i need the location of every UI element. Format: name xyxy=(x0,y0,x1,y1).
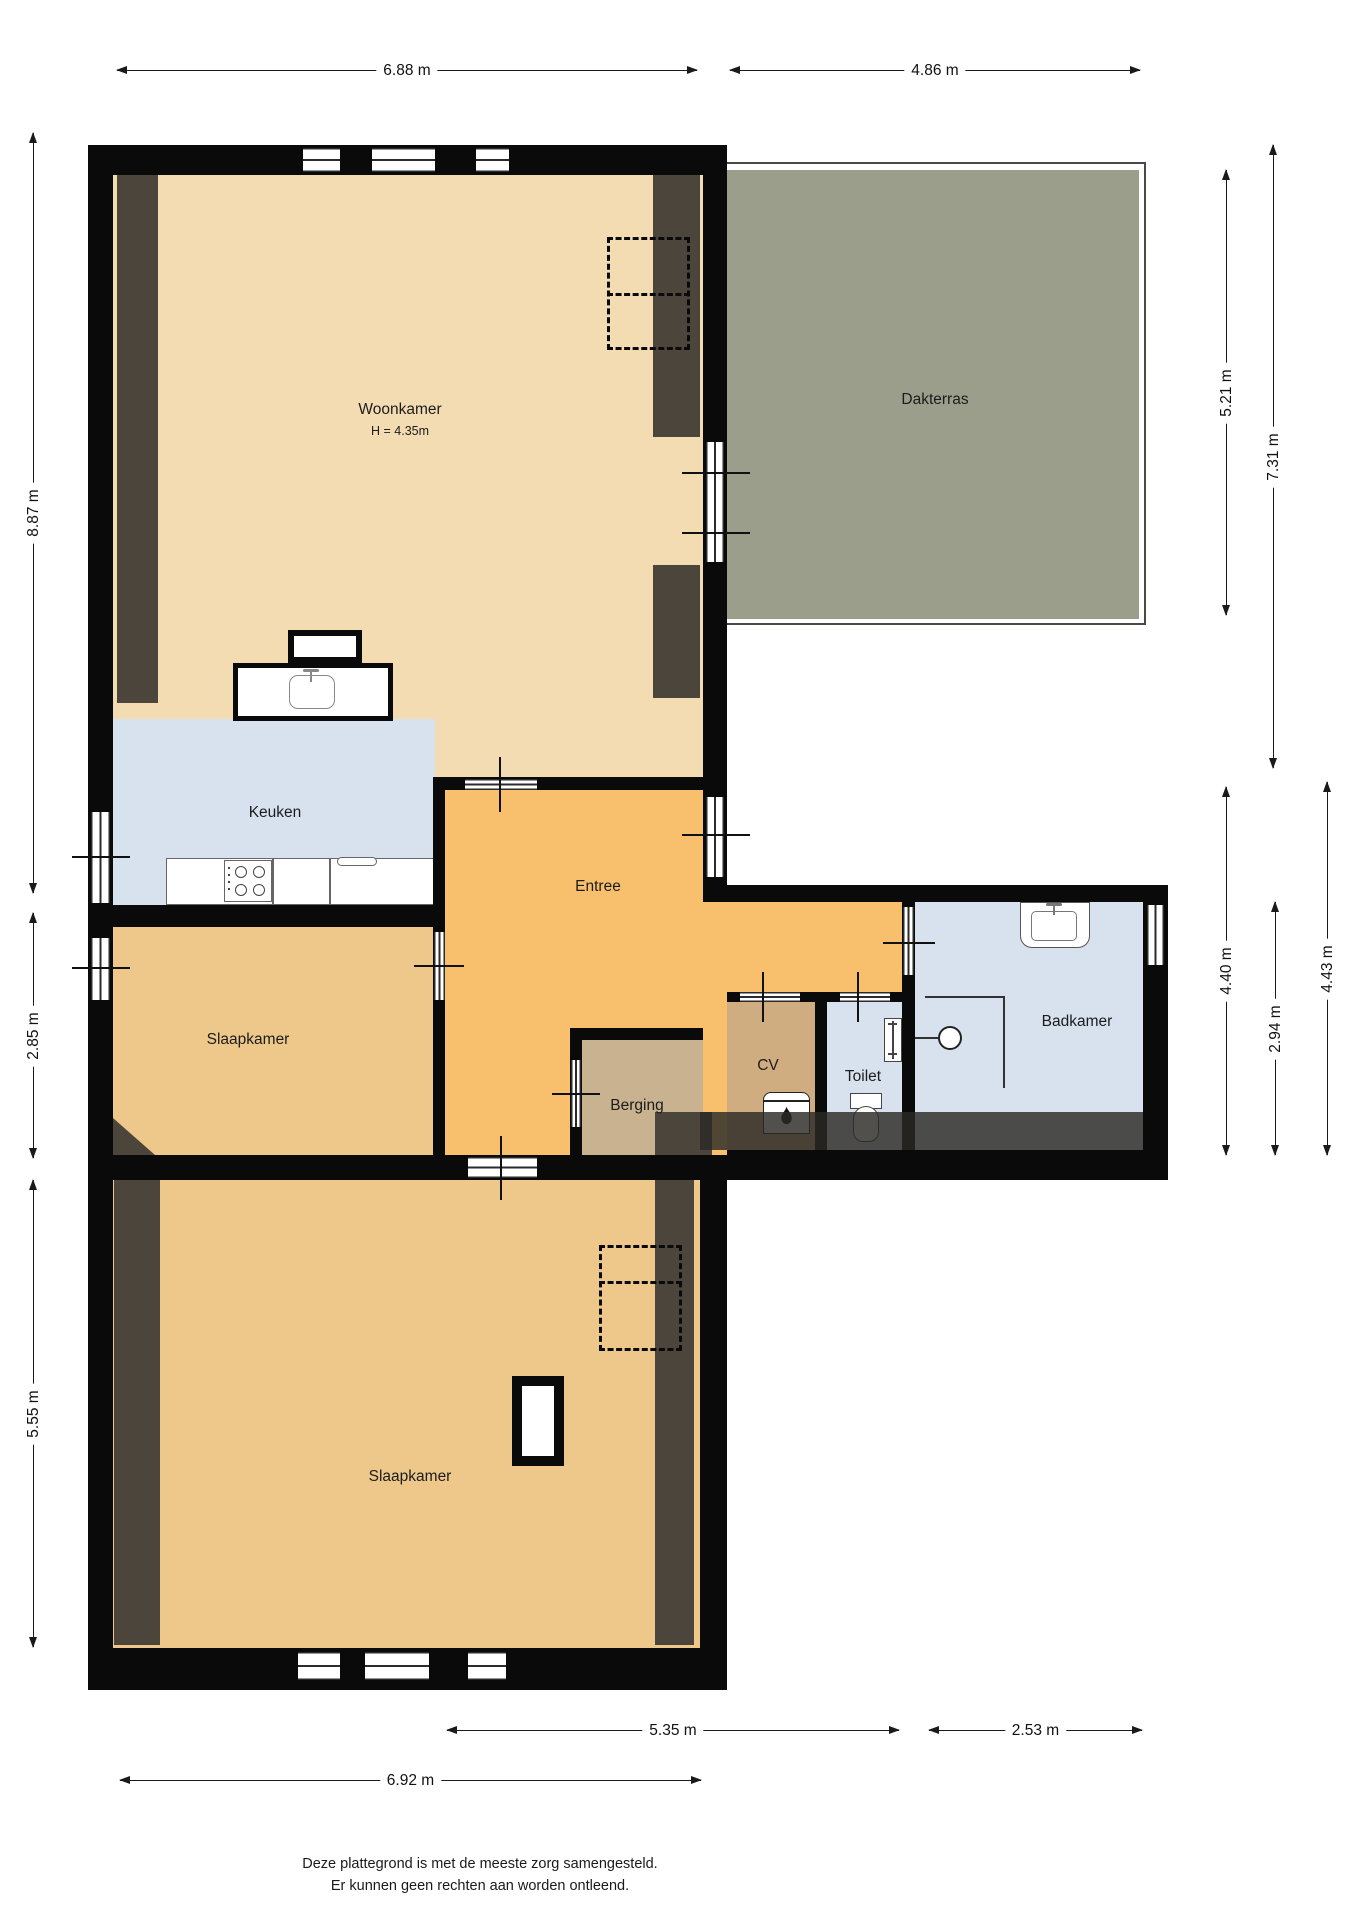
window xyxy=(476,148,509,172)
room-label-badkamer: Badkamer xyxy=(1042,1013,1113,1031)
window xyxy=(365,1652,429,1680)
room-label-keuken: Keuken xyxy=(249,804,302,822)
wall xyxy=(88,145,113,905)
skylight-icon xyxy=(607,237,690,350)
wall xyxy=(727,885,1168,902)
dimension-top-2: 4.86 m xyxy=(730,70,1140,71)
door-tick xyxy=(500,1136,502,1200)
wall xyxy=(88,905,445,927)
bathroom-sink-icon xyxy=(1020,902,1090,948)
window-tick xyxy=(72,856,130,858)
shower-head-icon xyxy=(938,1026,962,1050)
shower-screen xyxy=(1003,996,1005,1088)
door-tick xyxy=(682,532,750,534)
wall xyxy=(88,1180,113,1690)
door-tick xyxy=(499,757,501,812)
room-label-slaapkamer-onder: Slaapkamer xyxy=(369,1468,452,1486)
room-label-woonkamer: Woonkamer xyxy=(358,401,441,419)
wall xyxy=(727,1150,1168,1180)
door-tick xyxy=(883,942,935,944)
sink-icon xyxy=(289,675,335,709)
kitchen-island-cabinet xyxy=(288,630,362,663)
disclaimer-line-1: Deze plattegrond is met de meeste zorg s… xyxy=(140,1856,820,1872)
kitchen-counter xyxy=(166,858,435,905)
door-opening xyxy=(840,992,890,1002)
dimension-right-2: 7.31 m xyxy=(1273,145,1274,768)
room-label-entree: Entree xyxy=(575,878,621,896)
drainer-icon xyxy=(337,857,377,866)
window xyxy=(1147,905,1164,965)
door-opening xyxy=(465,779,537,790)
door-tick xyxy=(682,834,750,836)
room-label-dakterras: Dakterras xyxy=(901,391,968,409)
room-label-toilet: Toilet xyxy=(845,1068,881,1086)
door-tick xyxy=(857,972,859,1022)
room-height-note: H = 4.35m xyxy=(371,424,429,438)
wall xyxy=(88,1155,727,1180)
front-door xyxy=(706,797,724,877)
dimension-bottom-2: 2.53 m xyxy=(929,1730,1142,1731)
chimney xyxy=(512,1376,564,1466)
wall xyxy=(570,1028,703,1040)
shower-screen xyxy=(925,996,1005,998)
counter-divider xyxy=(272,859,274,904)
door-tick xyxy=(762,972,764,1022)
window xyxy=(303,148,340,172)
dimension-bottom-3: 6.92 m xyxy=(120,1780,701,1781)
dimension-right-1: 5.21 m xyxy=(1226,170,1227,615)
stove-icon xyxy=(224,860,272,902)
window xyxy=(298,1652,340,1680)
disclaimer-line-2: Er kunnen geen rechten aan worden ontlee… xyxy=(140,1878,820,1894)
sloped-ceiling-strip xyxy=(117,175,158,703)
floorplan-canvas: Woonkamer H = 4.35m Dakterras Keuken Ent… xyxy=(0,0,1358,1920)
lower-floor-overlay xyxy=(700,1112,1143,1150)
door-tick xyxy=(414,965,464,967)
door-tick xyxy=(552,1093,600,1095)
counter-divider xyxy=(329,859,331,904)
skylight-icon xyxy=(599,1245,682,1351)
dimension-bottom-1: 5.35 m xyxy=(447,1730,899,1731)
terrace-door xyxy=(706,442,724,562)
dimension-left-2: 2.85 m xyxy=(33,913,34,1158)
window xyxy=(91,938,110,1000)
sloped-ceiling-strip xyxy=(653,565,700,698)
faucet-icon xyxy=(303,669,319,672)
hall-corridor-floor xyxy=(727,902,902,992)
window-tick xyxy=(72,967,130,969)
radiator-icon xyxy=(884,1018,902,1062)
door-opening xyxy=(468,1157,537,1178)
door-opening xyxy=(903,907,914,975)
wall xyxy=(700,1155,727,1690)
dimension-left-3: 5.55 m xyxy=(33,1180,34,1647)
door-opening xyxy=(740,992,800,1002)
dimension-right-4: 2.94 m xyxy=(1275,902,1276,1155)
room-label-cv: CV xyxy=(757,1057,779,1075)
window xyxy=(372,148,435,172)
room-label-berging: Berging xyxy=(610,1097,663,1115)
dimension-left-1: 8.87 m xyxy=(33,133,34,893)
sloped-ceiling-strip xyxy=(114,1180,160,1645)
dimension-right-5: 4.43 m xyxy=(1327,782,1328,1155)
kitchen-island xyxy=(233,663,393,721)
dimension-right-3: 4.40 m xyxy=(1226,787,1227,1155)
door-tick xyxy=(682,472,750,474)
dimension-top-1: 6.88 m xyxy=(117,70,697,71)
room-label-slaapkamer-links: Slaapkamer xyxy=(207,1031,290,1049)
window xyxy=(468,1652,506,1680)
